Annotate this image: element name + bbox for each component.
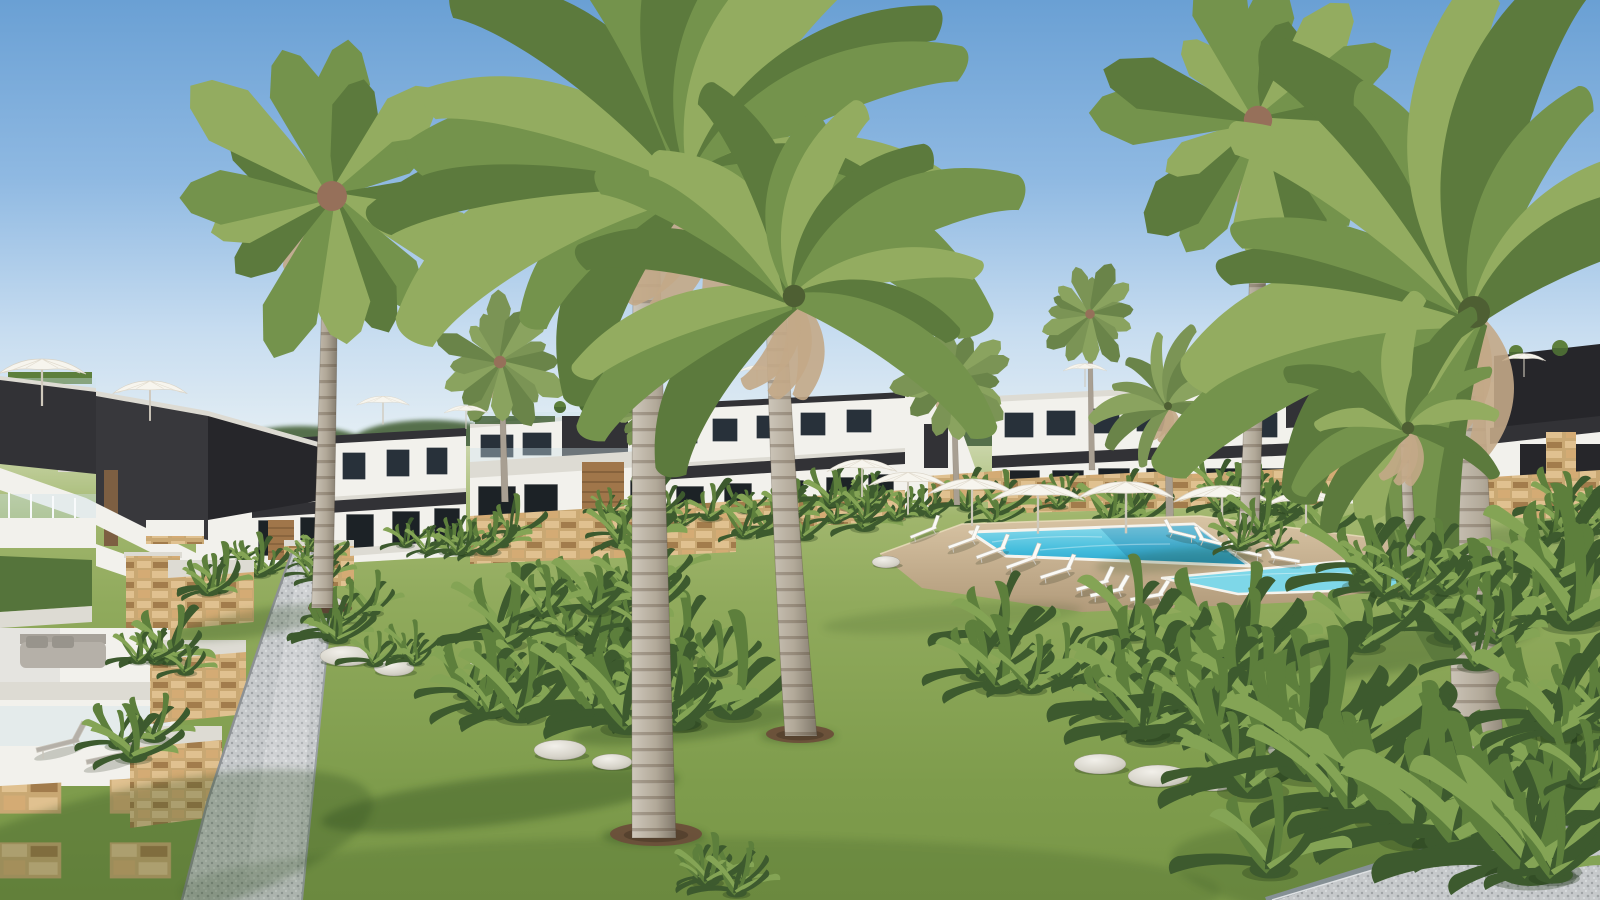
round-bush [1552, 340, 1568, 356]
render-image: 3D render of a new-build residential com… [0, 0, 1600, 900]
boulder [872, 556, 900, 568]
round-bush [554, 401, 566, 413]
boulder [1074, 754, 1126, 774]
scene-canvas [0, 0, 1600, 900]
boulder [592, 754, 632, 770]
boulder [534, 740, 586, 760]
